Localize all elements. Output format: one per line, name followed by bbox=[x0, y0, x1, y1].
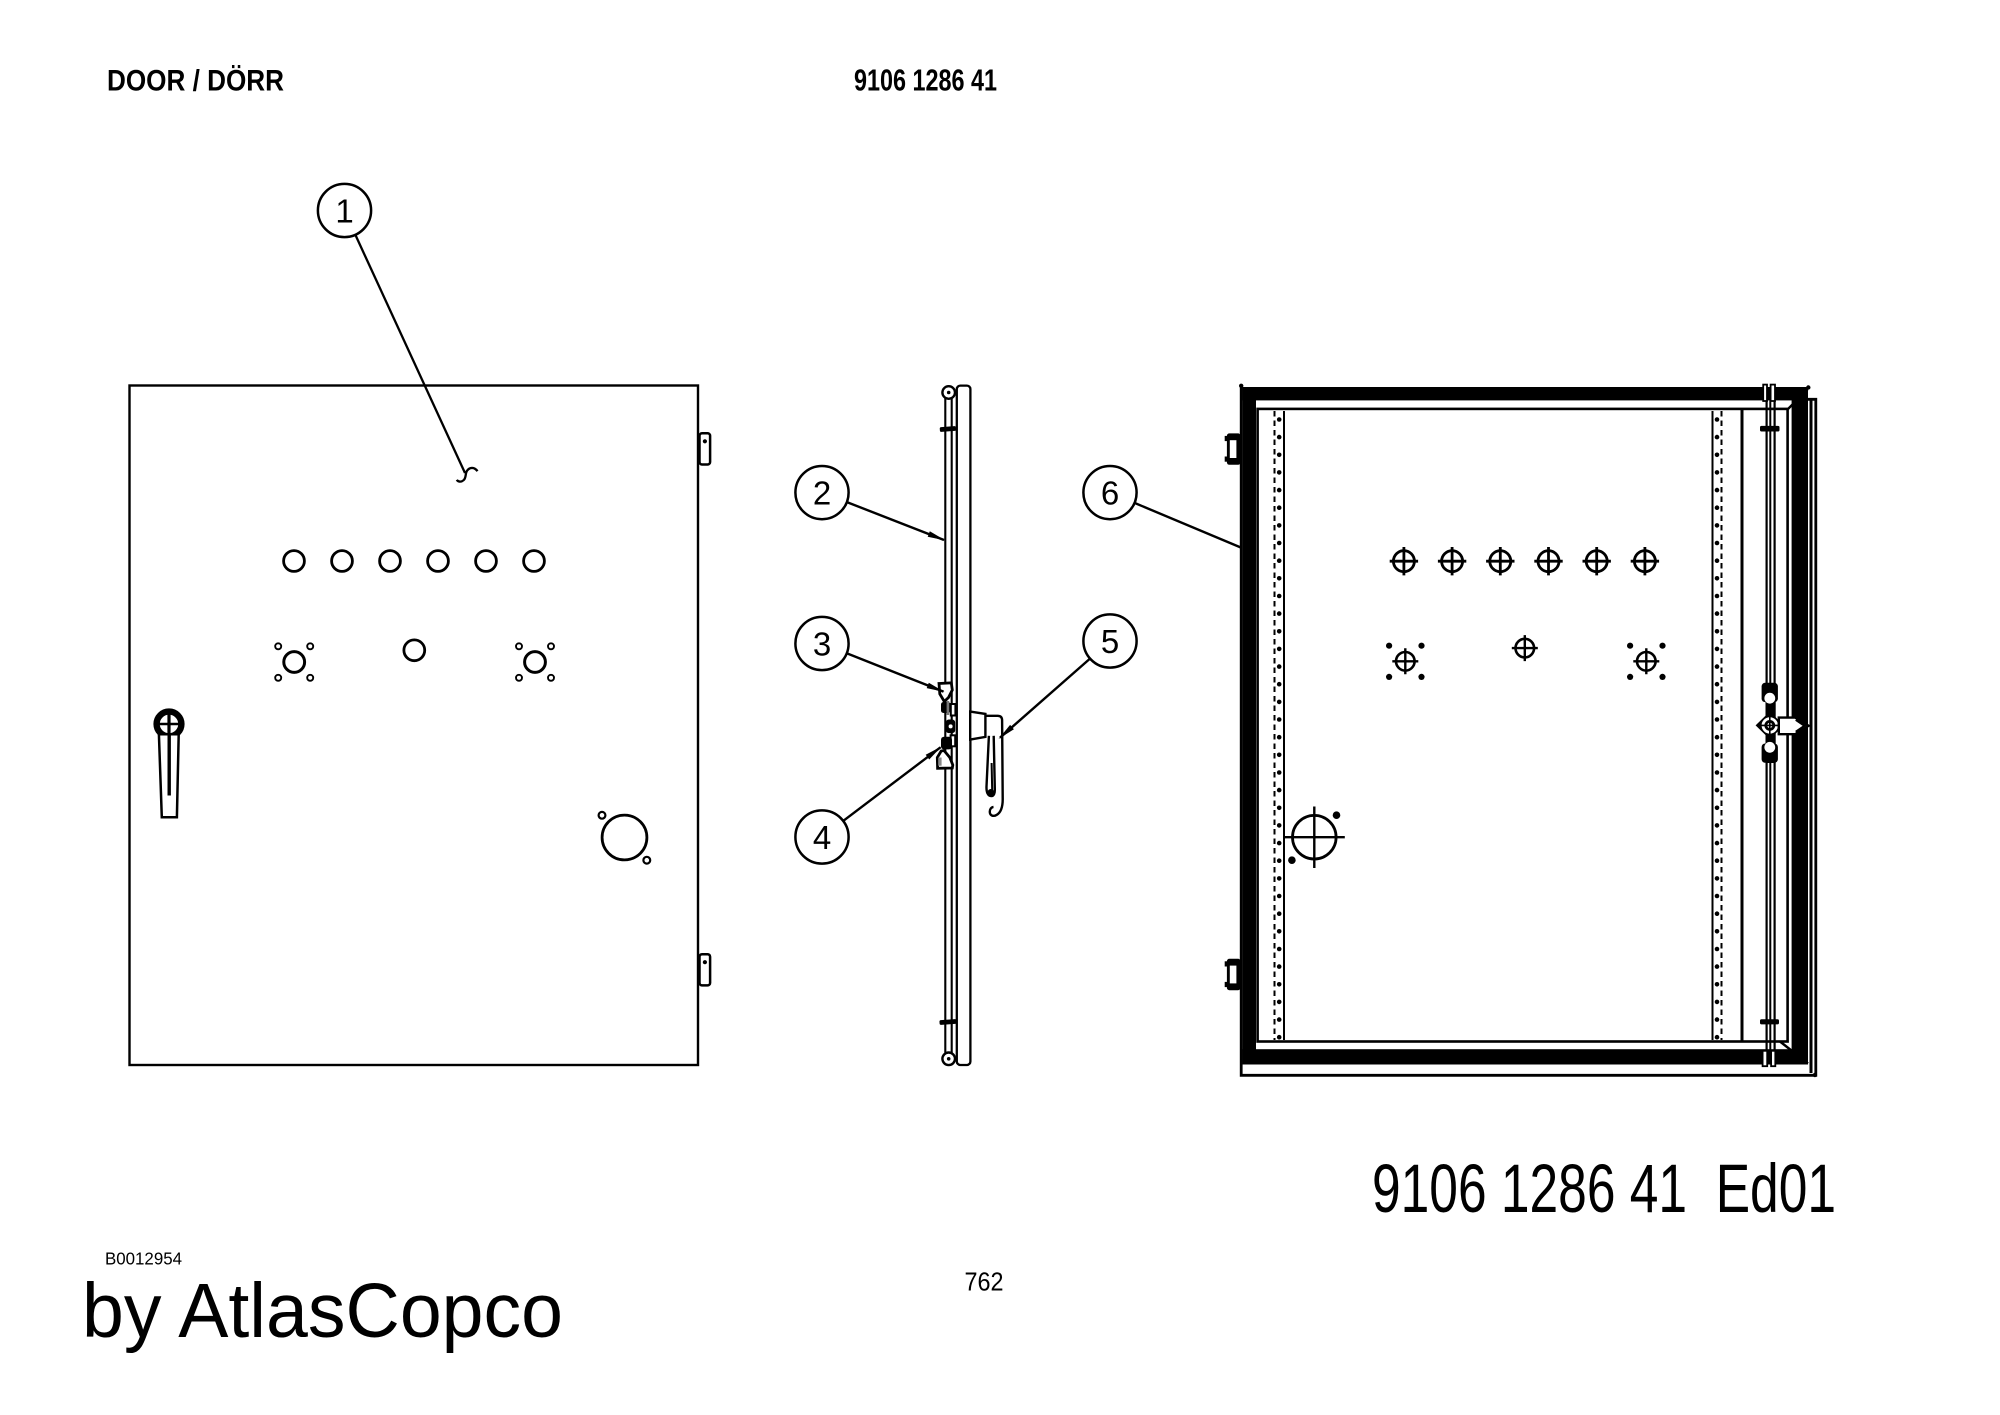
svg-text:6: 6 bbox=[1101, 474, 1119, 511]
svg-text:4: 4 bbox=[813, 819, 831, 856]
svg-text:by AtlasCopco: by AtlasCopco bbox=[82, 1268, 563, 1354]
svg-text:9106 1286 41 Ed01: 9106 1286 41 Ed01 bbox=[1372, 1150, 1836, 1227]
svg-text:B0012954: B0012954 bbox=[105, 1249, 182, 1269]
svg-text:3: 3 bbox=[813, 625, 831, 662]
svg-text:DOOR / DÖRR: DOOR / DÖRR bbox=[107, 65, 284, 98]
svg-text:9106 1286 41: 9106 1286 41 bbox=[854, 63, 997, 98]
svg-text:762: 762 bbox=[965, 1267, 1004, 1297]
svg-text:2: 2 bbox=[813, 474, 831, 511]
svg-text:1: 1 bbox=[335, 192, 353, 229]
svg-text:5: 5 bbox=[1101, 623, 1119, 660]
